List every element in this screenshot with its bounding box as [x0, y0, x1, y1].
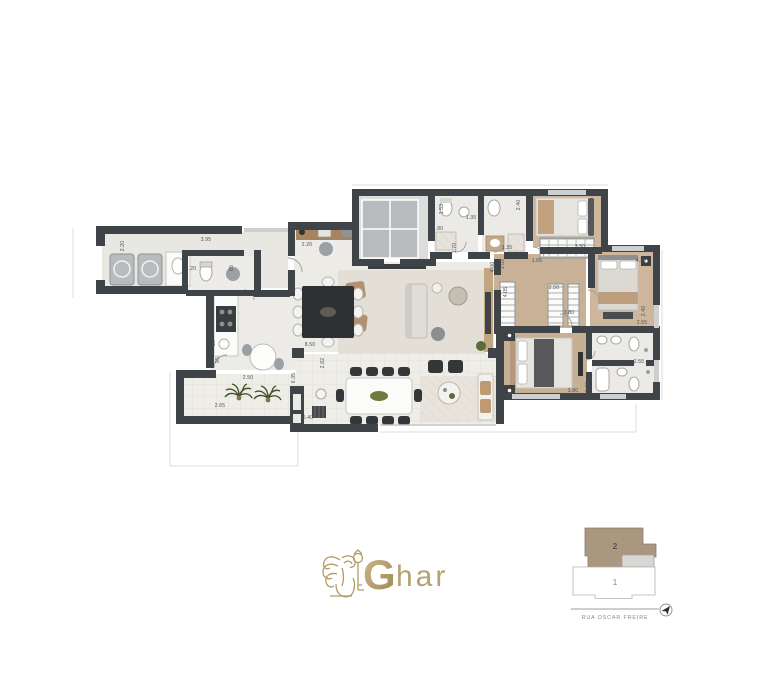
dimension-label: 3.80 [568, 388, 579, 394]
dimension-label: 8.50 [305, 342, 316, 348]
keyplan-unit2-label: 2 [613, 541, 618, 551]
dimension-label: 1.65 [532, 258, 543, 264]
lion-logo-icon [323, 550, 364, 597]
logo-text: har [396, 560, 448, 593]
dimension-label: 95 [215, 357, 221, 363]
dimension-label: 4.00 [490, 262, 496, 273]
dimension-label: 4.30 [636, 258, 647, 264]
logo: G har [323, 550, 448, 598]
master-bedroom-furniture [504, 330, 583, 396]
dimension-label: 2.40 [516, 200, 522, 211]
dimension-label: 1.60 [585, 382, 591, 393]
closet-cabinet [362, 200, 426, 269]
dimension-label: 2.50 [549, 285, 560, 291]
dimension-label: 2.20 [302, 242, 313, 248]
dining-furniture [293, 277, 363, 347]
dimension-label: 1.02 [500, 259, 506, 270]
dimension-label: 36 [211, 340, 217, 346]
dimension-label: 85 [229, 265, 235, 271]
dimension-label: 2.65 [215, 403, 226, 409]
keyplan: 2 1 RUA OSCAR FREIRE [571, 528, 672, 621]
dimension-label: 1.70 [452, 243, 458, 254]
dimension-label: 2.40 [641, 306, 647, 317]
logo-initial: G [363, 551, 396, 598]
north-arrow-icon [660, 604, 672, 616]
keyplan-annex [622, 555, 654, 567]
floorplan: 2.203.952.20852.201.531.351.801.702.401.… [0, 0, 768, 677]
dimension-label: 6.35 [291, 373, 297, 384]
dimension-label: 1.80 [433, 226, 444, 232]
dimension-label: 2.55 [634, 359, 645, 365]
dimension-label: 2.82 [320, 358, 326, 369]
grill-openings [293, 394, 301, 423]
dimension-label: 2.20 [186, 266, 197, 272]
dimension-label: 2.20 [120, 241, 126, 252]
dimension-label: 3.95 [201, 237, 212, 243]
dimension-label: 1.35 [466, 215, 477, 221]
dimension-label: 2.55 [637, 320, 648, 326]
dimension-label: 4.05 [503, 287, 509, 298]
keyplan-unit1-label: 1 [613, 577, 618, 587]
dimension-label: 3.80 [564, 310, 575, 316]
dimension-label: 6.40 [303, 415, 314, 421]
dimension-label: 1.53 [439, 204, 445, 215]
street-label: RUA OSCAR FREIRE [582, 615, 649, 621]
dimension-label: 3.50 [575, 244, 586, 250]
dimension-label: 2.50 [243, 375, 254, 381]
dimension-label: 1.35 [502, 245, 513, 251]
floorplan-page: 2.203.952.20852.201.531.351.801.702.401.… [0, 0, 768, 677]
